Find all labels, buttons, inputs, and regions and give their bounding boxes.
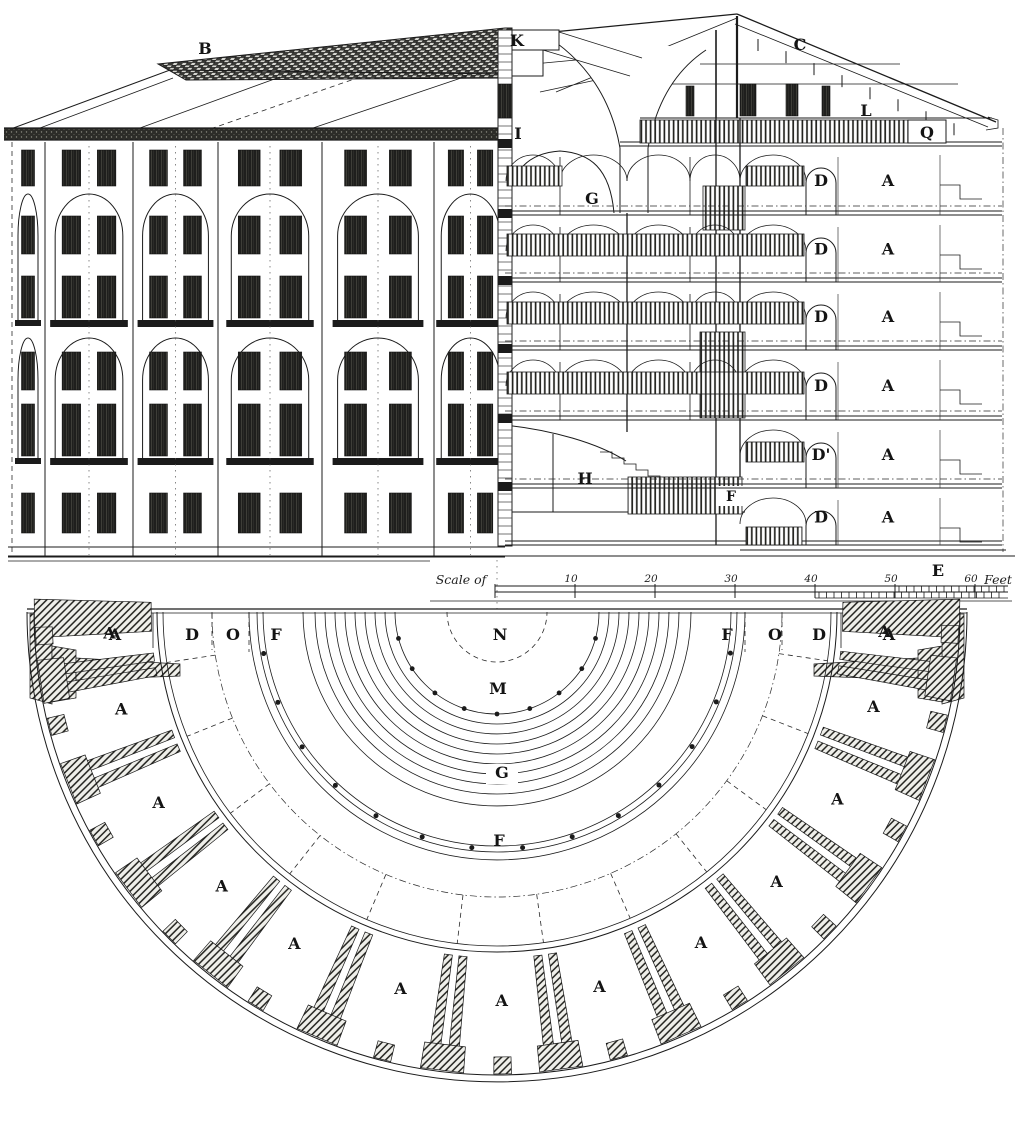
window — [280, 404, 302, 456]
facade-bay — [218, 142, 314, 556]
window — [477, 404, 492, 456]
facade-bay-narrow — [15, 150, 41, 533]
strip-attic-block — [498, 84, 512, 118]
plan-cell-label: A — [769, 872, 783, 891]
window — [238, 150, 260, 186]
foundation-label: E — [932, 561, 944, 580]
lodge-column-dot — [396, 636, 401, 641]
hall-soffit-curve — [505, 425, 626, 461]
wall-step — [940, 528, 982, 542]
cell-label: A — [881, 307, 895, 326]
facade-bay — [434, 142, 505, 556]
scale-tick-label: 20 — [643, 573, 658, 585]
floor-slab — [505, 416, 1002, 420]
window — [477, 216, 492, 254]
window — [22, 216, 35, 254]
window — [238, 276, 260, 318]
gallery-arch — [560, 155, 627, 181]
lodge-column-dot — [579, 666, 584, 671]
plan-cell-label: A — [592, 977, 606, 996]
window — [389, 493, 411, 533]
gallery-label: D — [814, 240, 828, 259]
scale-tick-label: 50 — [884, 573, 898, 585]
window — [150, 216, 168, 254]
cell-wall — [883, 818, 906, 841]
plan-view: ADOFFODANMGFAAAAAAAAAAAAA — [27, 599, 967, 1082]
cell-axis-dash — [779, 654, 827, 661]
lodge-column-dot — [495, 712, 500, 717]
scale-unit: Feet — [983, 572, 1013, 587]
plan-cell-label: A — [214, 876, 228, 895]
cell-label: A — [881, 376, 895, 395]
window — [62, 404, 80, 456]
zone-label-left: D — [185, 625, 199, 644]
attic-window — [822, 86, 830, 116]
window — [477, 150, 492, 186]
section-floor: DA — [505, 206, 1002, 282]
cell-axis-dash — [676, 834, 707, 872]
attic-window — [740, 84, 756, 116]
lantern-label: K — [510, 31, 525, 50]
cell-wall — [47, 714, 68, 735]
strip-floor-block — [498, 276, 512, 285]
scale-tick-label: 30 — [724, 573, 738, 585]
facade-bay — [45, 142, 128, 556]
strip-floor-block — [498, 209, 512, 218]
window — [97, 150, 115, 186]
window — [389, 276, 411, 318]
window — [448, 150, 463, 186]
cell-label: A — [881, 240, 895, 259]
window — [345, 216, 367, 254]
window — [238, 404, 260, 456]
cell-axis-dash — [762, 716, 808, 734]
cell-axis-dash — [367, 874, 386, 919]
window — [345, 352, 367, 390]
plan-cell-label: A — [114, 700, 128, 719]
window — [448, 493, 463, 533]
stair-label: F — [726, 489, 736, 505]
cell-wall — [537, 1040, 583, 1072]
window — [448, 352, 463, 390]
plan-cell-label: A — [866, 697, 880, 716]
window — [22, 150, 35, 186]
window — [280, 276, 302, 318]
facade-bays — [15, 142, 505, 556]
window — [62, 493, 80, 533]
engraving-canvas: B — [0, 0, 1024, 1129]
cell-wall — [755, 938, 804, 985]
wall-step — [940, 460, 982, 474]
window — [97, 404, 115, 456]
cell-axis-dash — [167, 655, 215, 662]
scale-bar: Scale of Feet 102030405060 — [436, 572, 1013, 598]
cell-wall — [941, 625, 959, 643]
window — [62, 216, 80, 254]
gallery-arch — [690, 155, 740, 181]
cell-wall — [35, 627, 53, 645]
cell-wall — [374, 1041, 395, 1062]
window — [150, 352, 168, 390]
window — [389, 216, 411, 254]
plan-ring — [249, 612, 745, 860]
gallery-balustrade — [507, 166, 562, 186]
plan-ring — [212, 612, 782, 897]
facade-bay — [133, 142, 213, 556]
cell-wall — [194, 941, 243, 988]
window — [184, 216, 202, 254]
window — [62, 150, 80, 186]
gallery-label: D — [814, 508, 828, 527]
left-wall-label: I — [514, 124, 521, 143]
plan-ring — [263, 612, 731, 846]
window — [345, 150, 367, 186]
scale-tick-label: 10 — [564, 573, 578, 585]
gallery-column-dot — [261, 651, 266, 656]
attic-window — [786, 84, 798, 116]
window — [280, 493, 302, 533]
wall-step — [940, 390, 982, 404]
gallery-column-dot — [570, 834, 575, 839]
window — [280, 150, 302, 186]
plan-cell-label: A — [102, 623, 116, 642]
gallery-column-dot — [690, 744, 695, 749]
cell-wall — [248, 987, 272, 1011]
gallery-column-dot — [333, 783, 338, 788]
window — [448, 276, 463, 318]
cell-wall — [927, 711, 948, 732]
window — [448, 216, 463, 254]
axis-label: M — [489, 679, 507, 698]
window — [97, 276, 115, 318]
cell-label: A — [881, 171, 895, 190]
window — [477, 352, 492, 390]
cell-axis-dash — [611, 873, 631, 918]
window — [389, 150, 411, 186]
panopticon-drawing: B — [0, 0, 1024, 1129]
window — [238, 352, 260, 390]
gallery-label: D — [814, 376, 828, 395]
gallery-label: D — [814, 171, 828, 190]
gallery-balustrade — [746, 527, 802, 545]
attic-window — [686, 86, 694, 116]
floor-slab — [505, 211, 1002, 215]
window — [477, 493, 492, 533]
attic-left-label: L — [860, 101, 871, 120]
window — [280, 216, 302, 254]
window — [238, 216, 260, 254]
gallery-column-dot — [616, 813, 621, 818]
cell-wall — [420, 1042, 465, 1073]
section-floor: DA — [505, 341, 1002, 420]
plan-cell-label: A — [494, 991, 508, 1010]
eaves-cornice — [4, 128, 512, 140]
wall-step — [940, 185, 982, 199]
lodge-column-dot — [462, 706, 467, 711]
window — [448, 404, 463, 456]
wall-step — [940, 322, 982, 336]
window — [22, 493, 35, 533]
window — [389, 404, 411, 456]
window — [345, 493, 367, 533]
cell-wall — [163, 919, 187, 943]
gallery-column-dot — [374, 813, 379, 818]
window — [150, 276, 168, 318]
zone-label-right: O — [768, 625, 782, 644]
strip-floor-block — [498, 344, 512, 353]
cell-axis-dash — [230, 784, 269, 814]
floor-slab — [505, 346, 1002, 350]
gallery-label: D' — [812, 445, 831, 464]
window — [345, 276, 367, 318]
cell-label: A — [881, 508, 895, 527]
scale-tick-label: 40 — [803, 573, 818, 585]
window — [184, 404, 202, 456]
attic-right-label: Q — [920, 123, 934, 142]
cell-wall — [494, 1057, 512, 1074]
scale-bar-lines — [495, 586, 1008, 592]
window — [62, 352, 80, 390]
window — [150, 150, 168, 186]
lodge-column-dot — [557, 691, 562, 696]
gallery-arch — [740, 498, 806, 524]
gallery-balustrade — [746, 166, 804, 186]
window — [97, 493, 115, 533]
cell-axis-dash — [537, 894, 544, 943]
sill-band — [15, 320, 41, 326]
window — [150, 493, 168, 533]
strip-floor-block — [498, 139, 512, 148]
cell-label: A — [881, 445, 895, 464]
scale-tick-label: 60 — [964, 573, 978, 585]
gallery-column-dot — [420, 834, 425, 839]
gallery-label: D — [814, 307, 828, 326]
zone-label-left: F — [270, 625, 282, 644]
plan-cell-label: A — [393, 979, 407, 998]
window — [389, 352, 411, 390]
plan-cell-label: A — [151, 793, 165, 812]
gallery-column-dot — [728, 651, 733, 656]
axis-label: G — [495, 763, 509, 782]
plan-cell-label: A — [694, 933, 708, 952]
floor-slab — [505, 278, 1002, 282]
window — [184, 276, 202, 318]
window — [280, 352, 302, 390]
strip-floor-block — [498, 482, 512, 491]
stair-shaft-upper — [703, 186, 745, 230]
cell-wall — [724, 986, 748, 1010]
gallery-column-dot — [275, 700, 280, 705]
lodge-column-dot — [410, 666, 415, 671]
window — [184, 352, 202, 390]
axis-label: F — [493, 831, 505, 850]
window — [62, 276, 80, 318]
plan-cell-label: A — [830, 789, 844, 808]
window — [22, 404, 35, 456]
facade-bay — [322, 142, 423, 556]
window — [97, 216, 115, 254]
plan-cell-label: A — [287, 934, 301, 953]
section-view: DADADADAD'ADA K C I G L Q H F E — [498, 14, 1006, 580]
plan-rings-cells: ADOFFODANMGFAAAAAAAAAAAAA — [27, 599, 967, 1082]
gallery-column-dot — [469, 845, 474, 850]
elevation-roof-label: B — [198, 39, 212, 58]
cell-axis-dash — [727, 781, 766, 810]
gallery-balustrade — [746, 442, 804, 462]
wall-step — [940, 255, 982, 269]
cell-axis-dash — [187, 718, 232, 736]
cut-wall-strip — [498, 30, 512, 546]
section-roof-label: C — [794, 35, 807, 54]
window — [477, 276, 492, 318]
gallery-column-dot — [656, 783, 661, 788]
window — [238, 493, 260, 533]
scale-caption: Scale of — [436, 572, 489, 587]
sill-band — [15, 458, 41, 464]
window — [97, 352, 115, 390]
elevation-view: B — [4, 28, 512, 557]
gallery-balustrade — [507, 302, 804, 324]
hall-label: H — [577, 469, 592, 488]
window — [345, 404, 367, 456]
attic-balustrade — [640, 120, 908, 143]
window — [22, 352, 35, 390]
gallery-balustrade — [507, 234, 804, 256]
gallery-column-dot — [520, 845, 525, 850]
collar-ties — [664, 64, 958, 84]
window — [184, 493, 202, 533]
zone-label-right: F — [721, 625, 733, 644]
plan-cell-label: A — [877, 622, 891, 641]
cell-wall — [812, 914, 836, 938]
window — [22, 276, 35, 318]
lodge-column-dot — [593, 636, 598, 641]
lodge-column-dot — [433, 691, 438, 696]
cell-wall — [90, 822, 113, 846]
strip-floor-block — [498, 414, 512, 423]
window — [184, 150, 202, 186]
window — [150, 404, 168, 456]
zone-label-right: D — [812, 625, 826, 644]
zone-label-left: O — [226, 625, 240, 644]
well-label: G — [585, 189, 599, 208]
axis-label: N — [493, 625, 508, 644]
section-floor: DA — [505, 273, 1002, 350]
cell-axis-dash — [457, 895, 463, 944]
gallery-balustrade — [507, 372, 804, 394]
gallery-column-dot — [300, 744, 305, 749]
cell-axis-dash — [290, 836, 320, 874]
gallery-column-dot — [714, 699, 719, 704]
lodge-column-dot — [527, 706, 532, 711]
